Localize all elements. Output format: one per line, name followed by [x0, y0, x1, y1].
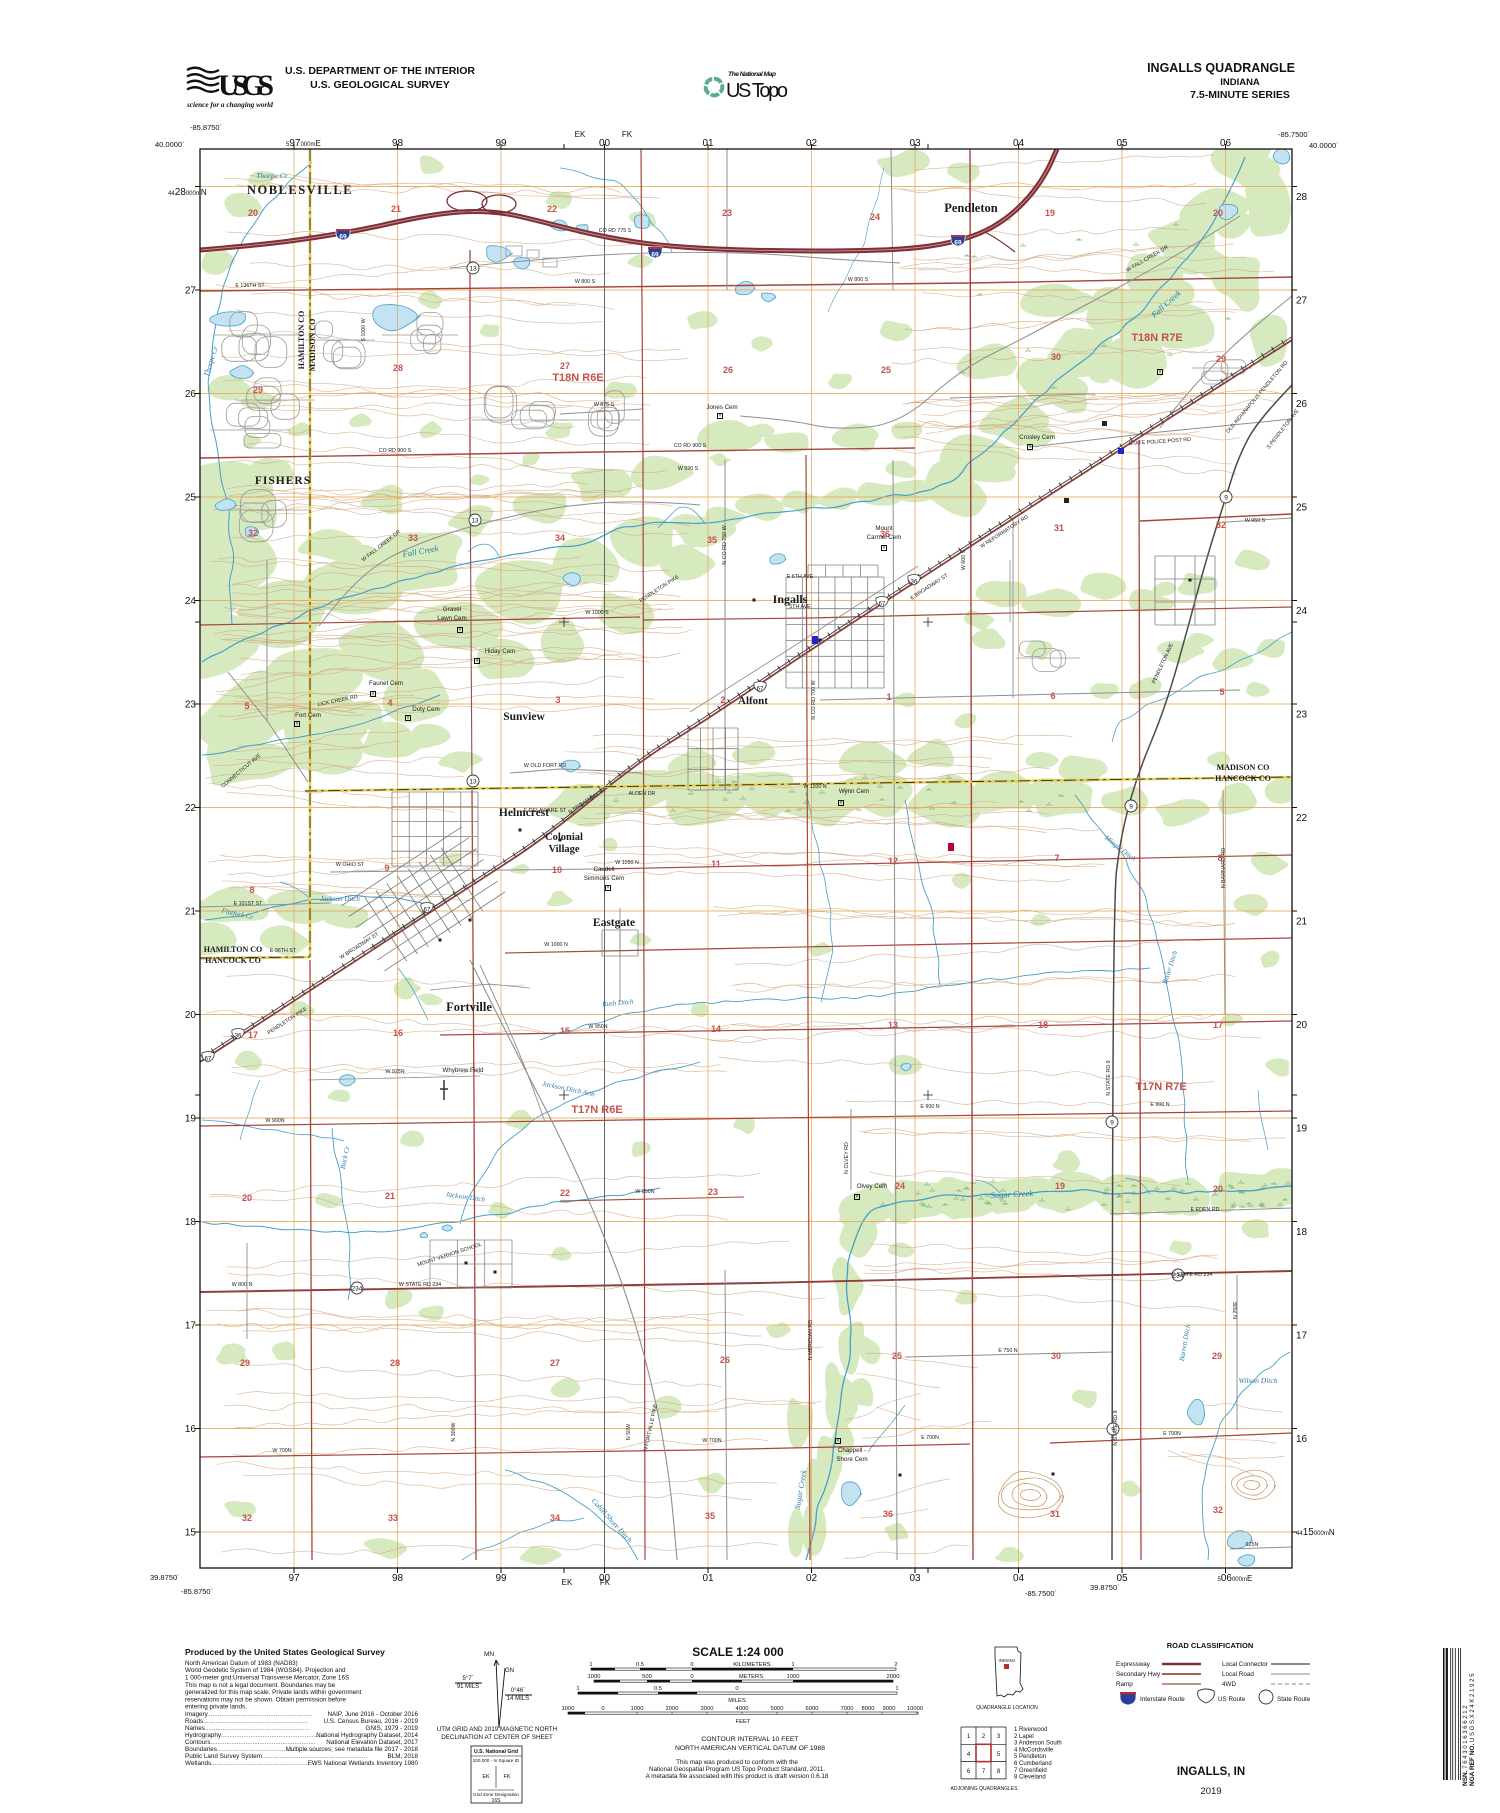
svg-text:Produced by the United States: Produced by the United States Geological… [185, 1647, 385, 1657]
svg-text:32: 32 [248, 528, 258, 538]
svg-text:1000: 1000 [562, 1706, 575, 1712]
svg-text:W 1100 N: W 1100 N [803, 784, 826, 790]
svg-text:Wilson Ditch: Wilson Ditch [1239, 1376, 1278, 1385]
svg-text:N CO RD 700 W: N CO RD 700 W [811, 680, 817, 719]
svg-text:67: 67 [757, 687, 764, 693]
svg-text:Whybrew Field: Whybrew Field [443, 1067, 484, 1074]
svg-text:1: 1 [791, 1662, 794, 1668]
svg-text:N CO RD 750 W: N CO RD 750 W [722, 525, 728, 564]
svg-text:U.S. Census Bureau, 2016 -: U.S. Census Bureau, 2016 - 2019 [323, 1718, 418, 1725]
svg-text:FK: FK [503, 1774, 510, 1780]
svg-text:CO RD 900 S: CO RD 900 S [674, 443, 707, 449]
svg-text:T17N R7E: T17N R7E [1135, 1081, 1186, 1093]
svg-text:28: 28 [390, 1358, 400, 1368]
svg-text:4 McCordsville: 4 McCordsville [1014, 1747, 1054, 1753]
svg-text:05: 05 [1116, 138, 1128, 149]
svg-text:ALDEN DR: ALDEN DR [629, 791, 656, 797]
svg-text:Multiple sources; see metad: Multiple sources; see metadata file 2017… [286, 1746, 419, 1753]
svg-text:5°7´: 5°7´ [462, 1676, 473, 1682]
svg-text:9: 9 [384, 863, 389, 873]
svg-text:9000: 9000 [883, 1706, 896, 1712]
svg-text:2000: 2000 [666, 1706, 679, 1712]
svg-text:-85.8750´: -85.8750´ [190, 123, 222, 132]
svg-text:0: 0 [690, 1662, 693, 1668]
svg-text:T18N R7E: T18N R7E [1131, 332, 1182, 344]
svg-text:26: 26 [720, 1355, 730, 1365]
svg-text:E 750 N: E 750 N [998, 1348, 1017, 1354]
svg-text:National Geospatial Program US: National Geospatial Program US Topo Prod… [649, 1766, 825, 1773]
svg-text:3 Anderson South: 3 Anderson South [1014, 1741, 1062, 1747]
svg-text:6 Cumberland: 6 Cumberland [1014, 1761, 1052, 1767]
svg-text:20: 20 [1213, 208, 1223, 218]
svg-text:Names.........................: Names...................................… [185, 1725, 310, 1732]
svg-text:Olvey Cem: Olvey Cem [857, 1183, 888, 1190]
svg-text:MILES: MILES [728, 1698, 746, 1704]
svg-text:24: 24 [185, 596, 197, 607]
svg-text:99: 99 [495, 1573, 507, 1584]
svg-text:22: 22 [560, 1188, 570, 1198]
svg-text:27: 27 [550, 1358, 560, 1368]
svg-text:Roads.........................: Roads...................................… [185, 1718, 308, 1725]
svg-text:A metadata file associated wit: A metadata file associated with this pro… [646, 1773, 829, 1780]
svg-text:Fort Cem: Fort Cem [295, 712, 321, 719]
svg-text:34: 34 [550, 1513, 560, 1523]
svg-text:FISHERS: FISHERS [255, 475, 311, 487]
svg-text:1: 1 [576, 1686, 579, 1692]
svg-text:HANCOCK CO: HANCOCK CO [1215, 774, 1271, 783]
svg-text:00: 00 [599, 138, 611, 149]
svg-text:5: 5 [244, 701, 249, 711]
svg-text:W OLD FORT RD: W OLD FORT RD [524, 763, 566, 769]
svg-text:29: 29 [1212, 1351, 1222, 1361]
svg-text:23: 23 [185, 700, 197, 711]
svg-text:E 101ST ST: E 101ST ST [234, 901, 264, 907]
svg-text:18: 18 [1038, 1020, 1048, 1030]
svg-text:8000: 8000 [862, 1706, 875, 1712]
svg-text:22: 22 [185, 803, 197, 814]
svg-text:Thorpe Cr: Thorpe Cr [256, 171, 288, 180]
svg-text:03: 03 [909, 138, 921, 149]
svg-text:21: 21 [385, 1191, 395, 1201]
svg-text:0: 0 [735, 1686, 738, 1692]
svg-text:25: 25 [185, 493, 197, 504]
svg-text:S 1000 W: S 1000 W [361, 318, 367, 341]
svg-text:0: 0 [690, 1674, 693, 1680]
svg-text:ADJOINING QUADRANGLES: ADJOINING QUADRANGLES [951, 1786, 1019, 1792]
svg-text:science for a changing world: science for a changing world [186, 101, 273, 109]
svg-text:27: 27 [185, 286, 197, 297]
svg-text:22: 22 [1296, 813, 1308, 824]
svg-text:INGALLS, IN: INGALLS, IN [1177, 1766, 1245, 1778]
svg-text:26: 26 [723, 365, 733, 375]
svg-text:U.S. National Grid: U.S. National Grid [474, 1749, 518, 1755]
svg-text:98: 98 [392, 1573, 404, 1584]
svg-text:Colonial: Colonial [545, 832, 583, 843]
svg-text:21: 21 [185, 907, 197, 918]
svg-text:29: 29 [1216, 354, 1226, 364]
svg-text:39.8750´: 39.8750´ [150, 1573, 180, 1582]
svg-text:9: 9 [1224, 495, 1228, 502]
svg-text:CONTOUR INTERVAL 10 FEET: CONTOUR INTERVAL 10 FEET [701, 1736, 798, 1743]
svg-text:19: 19 [1045, 208, 1055, 218]
svg-text:DECLINATION AT CENTER OF SHEET: DECLINATION AT CENTER OF SHEET [441, 1734, 553, 1741]
svg-text:NORTH AMERICAN VERTICAL DATUM: NORTH AMERICAN VERTICAL DATUM OF 1988 [675, 1745, 825, 1752]
svg-text:N OLVEY RD: N OLVEY RD [844, 1142, 850, 1174]
svg-text:FK: FK [600, 1578, 611, 1587]
svg-text:1: 1 [886, 692, 891, 702]
svg-text:NSN. 7 6 4 3 0 1 6 3 6 6 2 1 2: NSN. 7 6 4 3 0 1 6 3 6 6 2 1 2 [1462, 1705, 1469, 1786]
svg-text:Alfont: Alfont [738, 695, 768, 707]
svg-text:25: 25 [881, 365, 891, 375]
svg-text:UTM GRID AND 2019 MAGNETIC NOR: UTM GRID AND 2019 MAGNETIC NORTH [437, 1726, 558, 1733]
svg-text:Public Land Survey System..: Public Land Survey System...............… [185, 1753, 367, 1760]
svg-text:04: 04 [1013, 1573, 1025, 1584]
svg-text:Wetlands......................: Wetlands................................… [185, 1760, 316, 1767]
svg-text:4: 4 [387, 698, 392, 708]
svg-text:This map was produced to confo: This map was produced to conform with th… [676, 1759, 798, 1766]
svg-text:35: 35 [707, 535, 717, 545]
svg-text:GNIS, 1979 - 2019: GNIS, 1979 - 2019 [365, 1725, 418, 1732]
svg-text:7 Greenfield: 7 Greenfield [1014, 1768, 1047, 1774]
svg-text:N BARNARD RD: N BARNARD RD [1221, 848, 1227, 888]
svg-text:US Route: US Route [1218, 1696, 1246, 1703]
svg-text:22: 22 [547, 204, 557, 214]
svg-text:Ramp: Ramp [1116, 1681, 1133, 1688]
svg-text:500: 500 [642, 1674, 652, 1680]
svg-text:10000: 10000 [907, 1706, 923, 1712]
svg-text:HANCOCK CO: HANCOCK CO [205, 956, 261, 965]
svg-text:02: 02 [806, 138, 818, 149]
svg-text:NAIP, June 2016 - October 201: NAIP, June 2016 - October 2016 [327, 1711, 418, 1718]
svg-text:BLM, 2018: BLM, 2018 [388, 1753, 419, 1760]
svg-text:17: 17 [248, 1030, 258, 1040]
svg-text:North American Datum of 1983 (: North American Datum of 1983 (NAD83) [185, 1660, 298, 1667]
svg-text:W 925N: W 925N [385, 1069, 404, 1075]
svg-text:W 800 S: W 800 S [575, 279, 596, 285]
svg-text:CO RD 900 S: CO RD 900 S [379, 448, 412, 454]
svg-text:Village: Village [548, 844, 579, 855]
svg-text:W 700N: W 700N [272, 1448, 291, 1454]
svg-text:8 Cleveland: 8 Cleveland [1014, 1775, 1046, 1781]
svg-text:20: 20 [1213, 1184, 1223, 1194]
svg-text:FEET: FEET [736, 1719, 751, 1725]
svg-text:E 700N: E 700N [921, 1435, 939, 1441]
svg-text:13: 13 [469, 779, 477, 786]
svg-text:01: 01 [702, 138, 714, 149]
svg-text:19: 19 [185, 1114, 197, 1125]
svg-text:-85.7500´: -85.7500´ [1278, 130, 1310, 139]
svg-text:W 800 S: W 800 S [848, 277, 869, 283]
svg-text:20: 20 [1296, 1020, 1308, 1031]
svg-text:MADISON CO: MADISON CO [1217, 763, 1270, 772]
svg-text:8: 8 [249, 885, 254, 895]
svg-text:W OHIO ST: W OHIO ST [336, 862, 365, 868]
svg-text:Crosley Cem: Crosley Cem [1019, 434, 1055, 441]
svg-text:26: 26 [185, 389, 197, 400]
svg-text:FWS National Wetlands Inven: FWS National Wetlands Inventory 1980 [308, 1760, 419, 1767]
svg-text:W STATE RD 234: W STATE RD 234 [399, 1282, 441, 1288]
svg-text:16: 16 [393, 1028, 403, 1038]
svg-text:E EDEN RD: E EDEN RD [1191, 1207, 1220, 1213]
svg-text:1000: 1000 [588, 1674, 601, 1680]
svg-text:W 950N: W 950N [588, 1024, 607, 1030]
svg-text:-85.7500´: -85.7500´ [1025, 1589, 1057, 1598]
svg-text:Wynn Cem: Wynn Cem [839, 788, 870, 795]
svg-text:1 000-meter grid:Universal Tra: 1 000-meter grid:Universal Transverse Me… [185, 1674, 349, 1681]
svg-text:625N: 625N [1246, 1542, 1259, 1548]
svg-text:N 50W: N 50W [626, 1424, 632, 1440]
svg-text:T18N R6E: T18N R6E [552, 372, 603, 384]
svg-text:2: 2 [720, 695, 725, 705]
svg-text:14 MILS: 14 MILS [507, 1696, 529, 1702]
svg-text:5TH AVE: 5TH AVE [789, 604, 811, 610]
svg-text:234: 234 [352, 1286, 363, 1293]
svg-text:EK: EK [482, 1774, 490, 1780]
svg-text:01: 01 [702, 1573, 714, 1584]
svg-text:generalized for this map scale: generalized for this map scale. Private … [185, 1689, 362, 1696]
svg-text:17: 17 [1296, 1331, 1308, 1342]
svg-text:15: 15 [560, 1026, 570, 1036]
svg-text:5: 5 [1219, 687, 1224, 697]
svg-text:Jones Cem: Jones Cem [706, 404, 737, 411]
svg-text:Caudell: Caudell [594, 866, 615, 873]
svg-text:W 1000 S: W 1000 S [585, 610, 609, 616]
svg-text:Grid Zone Designation: Grid Zone Designation [473, 1792, 519, 1797]
svg-text:ROAD CLASSIFICATION: ROAD CLASSIFICATION [1167, 1641, 1254, 1650]
svg-text:W 900N: W 900N [265, 1118, 284, 1124]
svg-text:reservations may not be shown.: reservations may not be shown. Obtain pe… [185, 1696, 346, 1703]
svg-text:27: 27 [560, 361, 570, 371]
svg-text:Sunview: Sunview [503, 711, 545, 723]
svg-text:N STATE RD 9: N STATE RD 9 [1113, 1410, 1119, 1445]
svg-text:26: 26 [1296, 399, 1308, 410]
svg-text:69: 69 [339, 234, 347, 241]
svg-text:7000: 7000 [841, 1706, 854, 1712]
svg-text:31: 31 [1054, 523, 1064, 533]
svg-text:35: 35 [705, 1511, 715, 1521]
svg-text:U.S. DEPARTMENT OF THE INTERIO: U.S. DEPARTMENT OF THE INTERIOR [285, 65, 475, 77]
svg-text:5 Pendleton: 5 Pendleton [1014, 1754, 1046, 1760]
svg-text:5000: 5000 [771, 1706, 784, 1712]
svg-text:16S: 16S [492, 1798, 502, 1804]
svg-text:1 Riverwood: 1 Riverwood [1014, 1727, 1047, 1733]
svg-text:US Topo: US Topo [726, 80, 788, 102]
svg-text:Carmel Cem: Carmel Cem [867, 534, 902, 541]
svg-text:40.0000´: 40.0000´ [155, 140, 185, 149]
svg-text:INDIANA: INDIANA [999, 1658, 1016, 1663]
svg-text:HAMILTON CO: HAMILTON CO [204, 945, 262, 954]
svg-text:31: 31 [1050, 1509, 1060, 1519]
svg-text:National Hydrography Dataset: National Hydrography Dataset, 2014 [316, 1732, 418, 1739]
svg-text:4WD: 4WD [1222, 1681, 1236, 1688]
svg-text:27: 27 [1296, 296, 1308, 307]
svg-text:30: 30 [1051, 1351, 1061, 1361]
svg-text:Secondary Hwy: Secondary Hwy [1116, 1671, 1161, 1678]
svg-text:E 6TH AVE: E 6TH AVE [787, 574, 814, 580]
svg-text:2 Lapel: 2 Lapel [1014, 1734, 1034, 1740]
svg-text:20: 20 [185, 1010, 197, 1021]
svg-text:14: 14 [711, 1024, 721, 1034]
svg-text:E 900 N: E 900 N [920, 1104, 939, 1110]
svg-text:19: 19 [1055, 1181, 1065, 1191]
svg-text:15: 15 [185, 1528, 197, 1539]
svg-text:EK: EK [575, 130, 586, 139]
svg-text:Jackson Ditch: Jackson Ditch [320, 895, 360, 903]
svg-text:Simmons Cem: Simmons Cem [584, 875, 625, 882]
svg-text:Interstate Route: Interstate Route [1140, 1696, 1185, 1703]
svg-text:04: 04 [1013, 138, 1025, 149]
svg-text:Pendleton: Pendleton [944, 201, 998, 215]
svg-text:1: 1 [589, 1662, 592, 1668]
svg-text:SCALE 1:24 000: SCALE 1:24 000 [692, 1645, 784, 1659]
svg-text:Imagery.......................: Imagery.................................… [185, 1711, 313, 1718]
svg-text:9: 9 [1110, 1120, 1114, 1127]
svg-text:25: 25 [892, 1351, 902, 1361]
svg-text:02: 02 [806, 1573, 818, 1584]
svg-text:23: 23 [722, 208, 732, 218]
svg-text:2: 2 [894, 1662, 897, 1668]
svg-text:Eastgate: Eastgate [593, 917, 635, 929]
svg-text:GN: GN [505, 1668, 514, 1674]
svg-text:36: 36 [235, 1034, 242, 1040]
svg-text:32: 32 [242, 1513, 252, 1523]
svg-text:CO RD 775 S: CO RD 775 S [599, 228, 632, 234]
svg-text:67: 67 [879, 602, 886, 608]
svg-text:23: 23 [708, 1187, 718, 1197]
svg-text:97: 97 [288, 1573, 300, 1584]
svg-text:21: 21 [1296, 917, 1308, 928]
svg-text:13: 13 [888, 1020, 898, 1030]
svg-text:E 700N: E 700N [1163, 1431, 1181, 1437]
svg-text:E 96TH ST: E 96TH ST [270, 948, 297, 954]
svg-text:33: 33 [388, 1513, 398, 1523]
svg-text:Faunet Cem: Faunet Cem [369, 680, 403, 687]
svg-text:Doty Cem: Doty Cem [412, 706, 440, 713]
svg-text:This map is not a legal docume: This map is not a legal document. Bounda… [185, 1682, 336, 1689]
svg-text:USGS: USGS [218, 69, 274, 102]
svg-text:91 MILS: 91 MILS [457, 1684, 479, 1690]
svg-text:16: 16 [1296, 1434, 1308, 1445]
svg-text:1000: 1000 [787, 1674, 800, 1680]
svg-text:4000: 4000 [736, 1706, 749, 1712]
svg-text:The National Map: The National Map [728, 71, 776, 78]
svg-text:E 136TH ST: E 136TH ST [235, 283, 265, 289]
svg-text:67: 67 [424, 908, 431, 914]
svg-text:13: 13 [471, 518, 479, 525]
svg-text:entering private lands.: entering private lands. [185, 1704, 247, 1711]
svg-text:3000: 3000 [701, 1706, 714, 1712]
svg-text:W 920 S: W 920 S [678, 466, 699, 472]
svg-text:7: 7 [1054, 853, 1059, 863]
svg-text:INGALLS QUADRANGLE: INGALLS QUADRANGLE [1147, 61, 1295, 75]
svg-text:Local Connector: Local Connector [1222, 1661, 1268, 1668]
svg-text:W 850N: W 850N [635, 1189, 654, 1195]
svg-text:W 1000 N: W 1000 N [544, 942, 568, 948]
svg-text:W 875 S: W 875 S [594, 402, 615, 408]
svg-text:13: 13 [469, 266, 477, 273]
svg-text:E STATE RD 234: E STATE RD 234 [1172, 1272, 1213, 1278]
svg-text:67: 67 [205, 1057, 212, 1063]
svg-text:Fortville: Fortville [446, 1000, 492, 1014]
svg-text:0.5: 0.5 [636, 1662, 644, 1668]
svg-text:W 800 N: W 800 N [232, 1282, 253, 1288]
svg-text:32: 32 [1216, 520, 1226, 530]
svg-text:25: 25 [1296, 503, 1308, 514]
svg-text:Lawn Cem: Lawn Cem [437, 615, 467, 622]
svg-text:1: 1 [895, 1686, 898, 1692]
svg-text:6: 6 [1050, 691, 1055, 701]
svg-text:W 600 S: W 600 S [961, 549, 967, 570]
svg-text:Hiday Cem: Hiday Cem [485, 648, 516, 655]
svg-text:U.S. GEOLOGICAL SURVEY: U.S. GEOLOGICAL SURVEY [310, 79, 450, 91]
svg-text:T17N R6E: T17N R6E [571, 1104, 622, 1116]
svg-text:0.5: 0.5 [654, 1686, 662, 1692]
svg-text:NGA REF NO. U S G S X 2 4 K 2: NGA REF NO. U S G S X 2 4 K 2 1 9 2 5 [1469, 1673, 1476, 1786]
svg-text:W 700N: W 700N [702, 1438, 721, 1444]
svg-text:N 300W: N 300W [451, 1422, 457, 1441]
svg-text:EK: EK [562, 1578, 573, 1587]
svg-text:3: 3 [555, 695, 560, 705]
svg-text:23: 23 [1296, 710, 1308, 721]
svg-text:30: 30 [1051, 352, 1061, 362]
svg-text:17: 17 [185, 1321, 197, 1332]
svg-text:Chappell -: Chappell - [838, 1447, 866, 1454]
svg-text:36: 36 [911, 580, 918, 586]
svg-text:National Elevation Dataset,: National Elevation Dataset, 2017 [326, 1739, 418, 1746]
svg-text:KILOMETERS: KILOMETERS [733, 1662, 770, 1668]
svg-text:20: 20 [248, 208, 258, 218]
svg-text:N 250E: N 250E [1233, 1301, 1239, 1319]
svg-text:NOBLESVILLE: NOBLESVILLE [247, 183, 353, 197]
svg-text:16: 16 [185, 1424, 197, 1435]
svg-text:FK: FK [622, 130, 633, 139]
svg-text:18: 18 [1296, 1227, 1308, 1238]
svg-text:Shore Cem: Shore Cem [836, 1456, 867, 1463]
svg-text:28: 28 [393, 363, 403, 373]
svg-text:29: 29 [253, 385, 263, 395]
svg-text:W 950 S: W 950 S [1245, 518, 1266, 524]
svg-text:69: 69 [954, 240, 962, 247]
svg-text:0: 0 [601, 1706, 604, 1712]
svg-text:24: 24 [895, 1181, 905, 1191]
svg-text:Local Road: Local Road [1222, 1671, 1254, 1678]
svg-text:W 1050 N: W 1050 N [615, 860, 639, 866]
svg-text:100,000 - m Square ID: 100,000 - m Square ID [473, 1758, 520, 1763]
svg-text:12: 12 [888, 856, 898, 866]
svg-text:7.5-MINUTE SERIES: 7.5-MINUTE SERIES [1190, 89, 1290, 101]
svg-text:40.0000´: 40.0000´ [1309, 141, 1339, 150]
svg-text:11: 11 [711, 859, 721, 869]
svg-text:69: 69 [651, 252, 659, 259]
svg-text:METERS: METERS [739, 1674, 763, 1680]
svg-text:1000: 1000 [631, 1706, 644, 1712]
svg-text:State Route: State Route [1277, 1696, 1311, 1703]
svg-text:N MERIDIAN RD: N MERIDIAN RD [808, 1320, 814, 1360]
svg-text:33: 33 [408, 533, 418, 543]
svg-text:10: 10 [552, 865, 562, 875]
svg-text:6000: 6000 [806, 1706, 819, 1712]
svg-text:9: 9 [1129, 804, 1133, 811]
svg-text:36: 36 [883, 1509, 893, 1519]
svg-text:MADISON CO: MADISON CO [308, 319, 317, 372]
svg-text:MN: MN [484, 1651, 494, 1658]
svg-text:E 900 N: E 900 N [1150, 1102, 1169, 1108]
svg-text:2019: 2019 [1200, 1786, 1221, 1797]
svg-text:-85.8750´: -85.8750´ [181, 1587, 213, 1596]
svg-text:99: 99 [495, 138, 507, 149]
svg-text:20: 20 [242, 1193, 252, 1203]
svg-text:98: 98 [392, 138, 404, 149]
